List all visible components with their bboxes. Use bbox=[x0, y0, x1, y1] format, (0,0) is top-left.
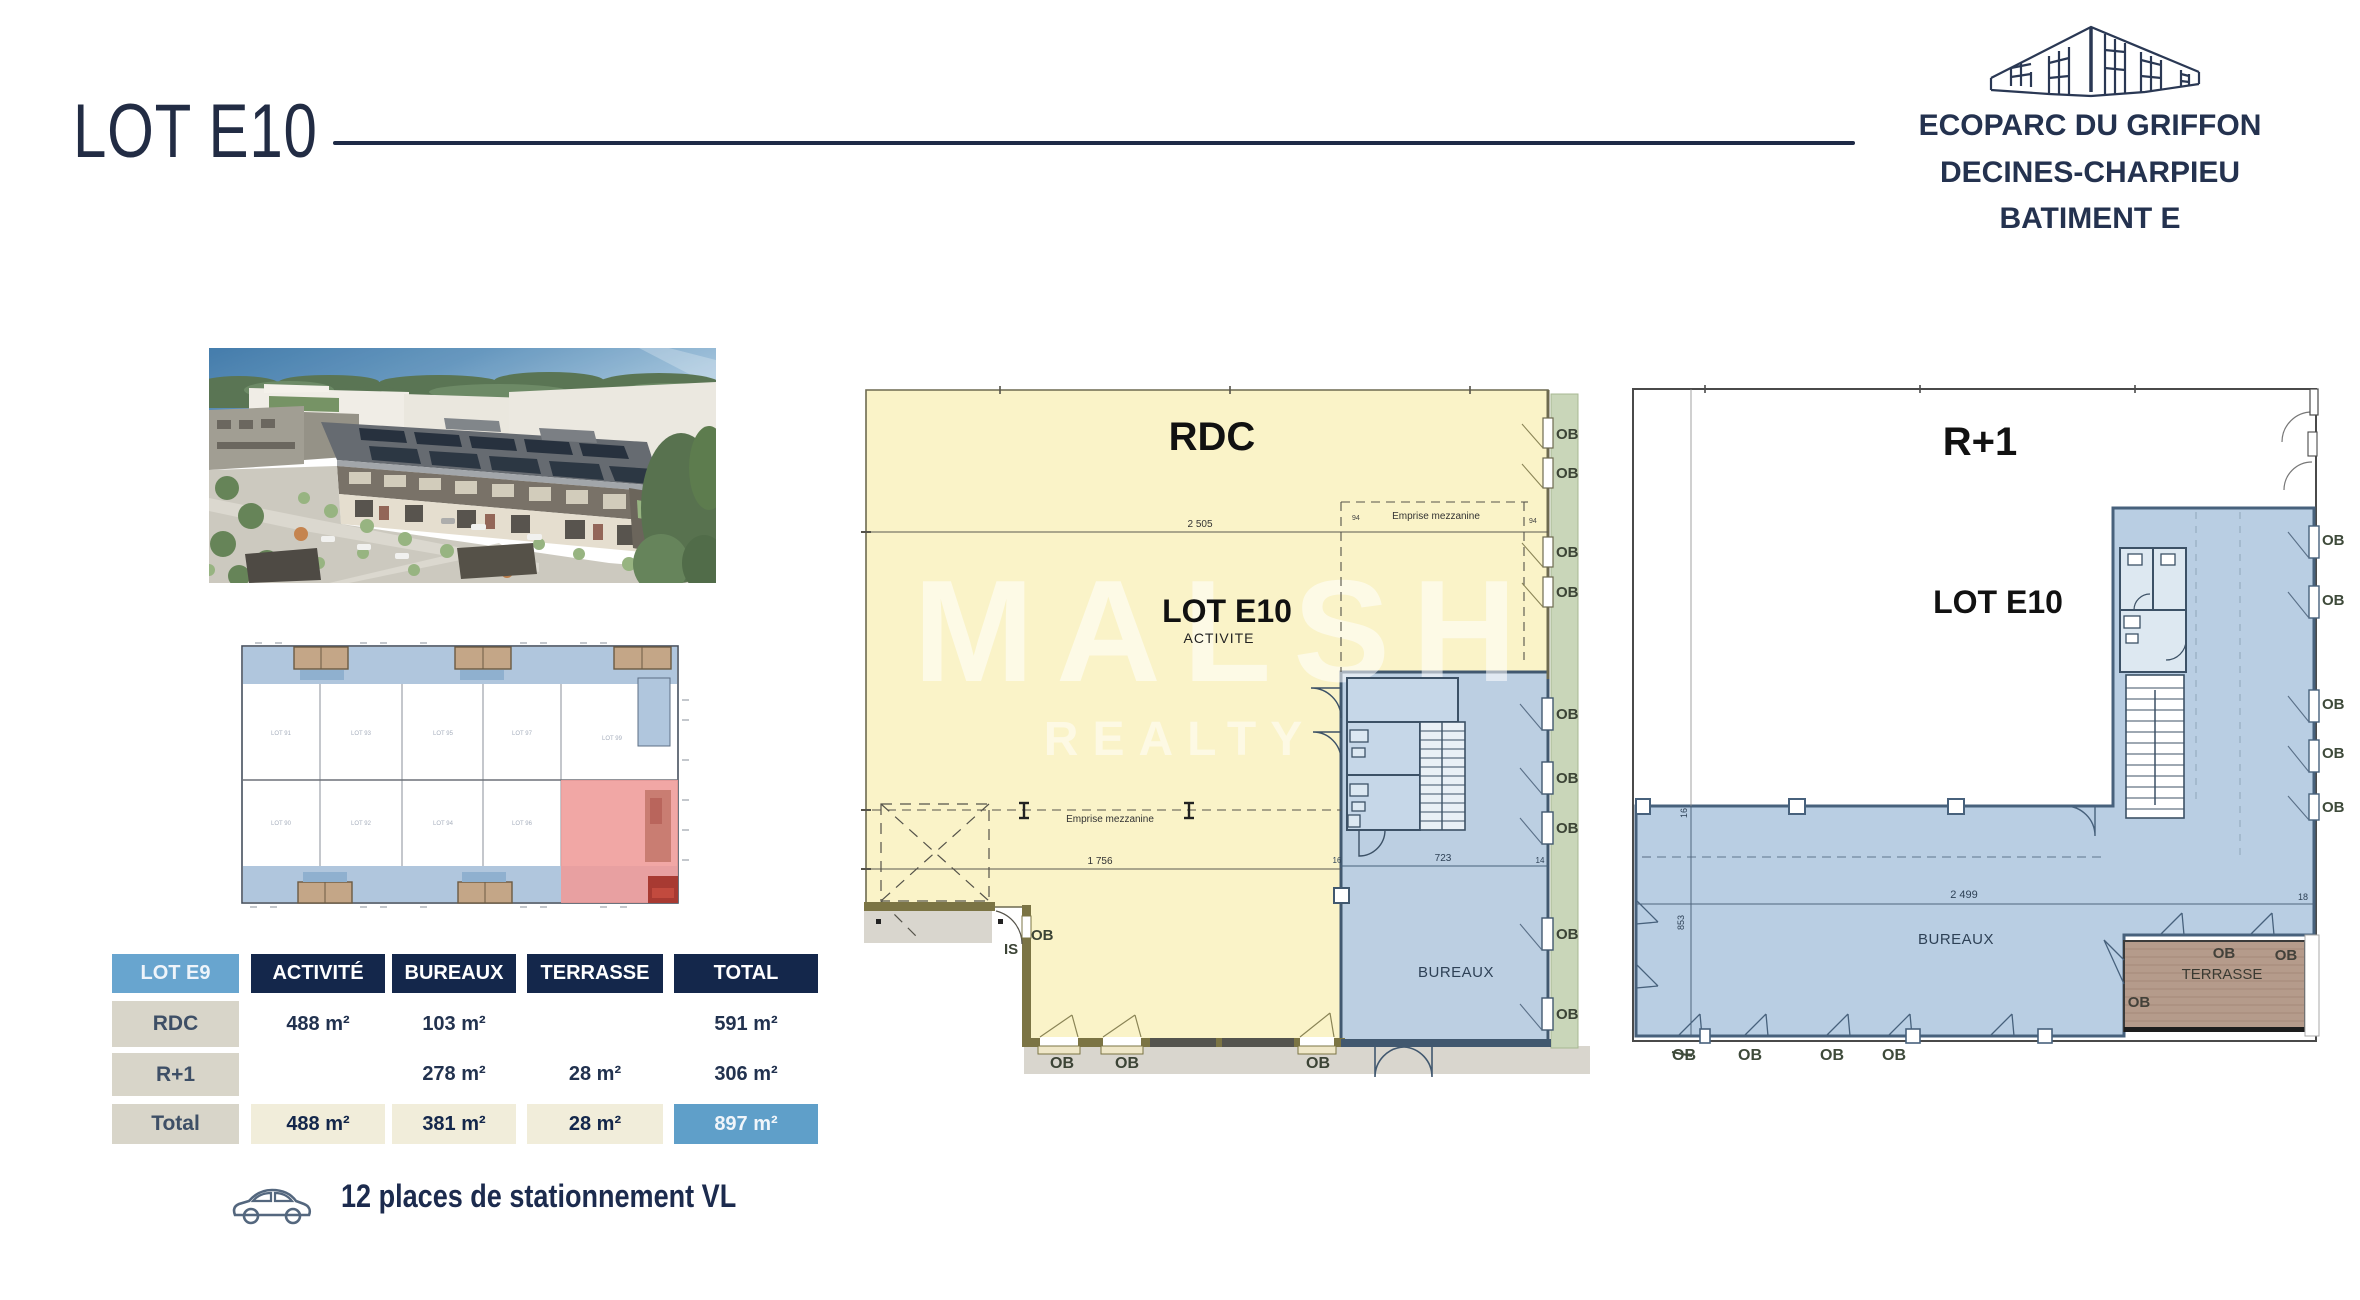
svg-text:ACTIVITE: ACTIVITE bbox=[1183, 630, 1254, 646]
svg-text:LOT 96: LOT 96 bbox=[512, 821, 533, 827]
svg-text:LOT 95: LOT 95 bbox=[433, 731, 454, 737]
svg-text:R+1: R+1 bbox=[1943, 420, 2018, 464]
svg-text:RDC: RDC bbox=[1169, 415, 1256, 459]
svg-text:OB: OB bbox=[1556, 544, 1579, 561]
svg-text:Emprise mezzanine: Emprise mezzanine bbox=[1392, 511, 1480, 522]
svg-text:IS: IS bbox=[1004, 941, 1018, 958]
svg-text:OB: OB bbox=[1556, 584, 1579, 601]
svg-text:OB: OB bbox=[1556, 770, 1579, 787]
svg-text:2 505: 2 505 bbox=[1187, 519, 1212, 530]
svg-text:BUREAUX: BUREAUX bbox=[1418, 964, 1494, 981]
svg-text:OB: OB bbox=[2322, 745, 2345, 762]
svg-text:REALTY: REALTY bbox=[1044, 713, 1316, 766]
svg-text:94: 94 bbox=[1529, 518, 1537, 525]
svg-text:723: 723 bbox=[1435, 853, 1452, 864]
svg-text:Emprise mezzanine: Emprise mezzanine bbox=[1066, 814, 1154, 825]
svg-text:OB: OB bbox=[1556, 926, 1579, 943]
svg-text:OB: OB bbox=[2322, 592, 2345, 609]
svg-text:94: 94 bbox=[1352, 515, 1360, 522]
svg-text:OB: OB bbox=[1556, 426, 1579, 443]
svg-text:18: 18 bbox=[2298, 892, 2308, 902]
svg-text:OB: OB bbox=[2322, 532, 2345, 549]
svg-text:LOT E10: LOT E10 bbox=[1933, 584, 2063, 620]
svg-text:16: 16 bbox=[1679, 808, 1689, 818]
svg-text:OB: OB bbox=[2322, 696, 2345, 713]
svg-text:OB: OB bbox=[2275, 947, 2298, 964]
svg-text:OB: OB bbox=[1556, 820, 1579, 837]
svg-text:OB: OB bbox=[1738, 1047, 1762, 1064]
svg-text:OB: OB bbox=[1672, 1047, 1696, 1064]
svg-text:LOT 93: LOT 93 bbox=[351, 731, 372, 737]
svg-text:1 756: 1 756 bbox=[1087, 856, 1112, 867]
svg-text:LOT 97: LOT 97 bbox=[512, 731, 533, 737]
svg-text:OB: OB bbox=[2128, 994, 2151, 1011]
svg-text:LOT 94: LOT 94 bbox=[433, 821, 454, 827]
svg-text:OB: OB bbox=[1556, 706, 1579, 723]
svg-text:OB: OB bbox=[2213, 945, 2236, 962]
svg-text:OB: OB bbox=[1882, 1047, 1906, 1064]
svg-text:853: 853 bbox=[1676, 915, 1686, 930]
svg-text:OB: OB bbox=[1820, 1047, 1844, 1064]
svg-text:OB: OB bbox=[1050, 1055, 1074, 1072]
svg-text:OB: OB bbox=[1556, 465, 1579, 482]
svg-text:LOT 90: LOT 90 bbox=[271, 821, 292, 827]
svg-text:2 499: 2 499 bbox=[1950, 889, 1978, 901]
svg-text:LOT 92: LOT 92 bbox=[351, 821, 372, 827]
svg-text:OB: OB bbox=[1556, 1006, 1579, 1023]
svg-text:14: 14 bbox=[1536, 856, 1545, 865]
svg-text:OB: OB bbox=[1306, 1055, 1330, 1072]
svg-text:OB: OB bbox=[1115, 1055, 1139, 1072]
svg-text:LOT E10: LOT E10 bbox=[1162, 593, 1292, 629]
svg-text:LOT 91: LOT 91 bbox=[271, 731, 292, 737]
svg-text:TERRASSE: TERRASSE bbox=[2182, 966, 2263, 983]
svg-text:BUREAUX: BUREAUX bbox=[1918, 931, 1994, 948]
svg-text:OB: OB bbox=[1031, 927, 1054, 944]
svg-text:LOT 99: LOT 99 bbox=[602, 736, 623, 742]
svg-text:OB: OB bbox=[2322, 799, 2345, 816]
svg-text:16: 16 bbox=[1333, 856, 1342, 865]
